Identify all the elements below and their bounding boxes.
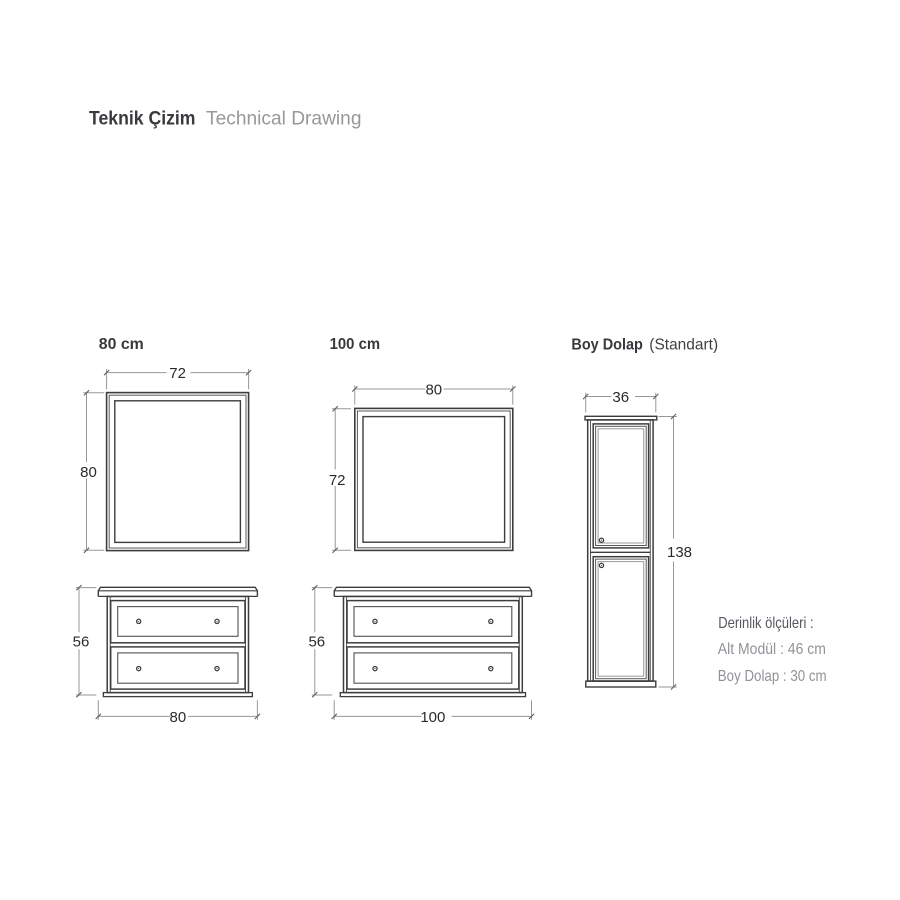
svg-text:80: 80: [170, 709, 187, 726]
svg-text:(Standart): (Standart): [649, 336, 718, 353]
svg-text:80 cm: 80 cm: [99, 336, 144, 353]
svg-text:Derinlik ölçüleri :: Derinlik ölçüleri :: [718, 615, 813, 632]
svg-text:72: 72: [329, 472, 346, 489]
svg-text:Technical Drawing: Technical Drawing: [206, 107, 362, 129]
svg-text:56: 56: [73, 634, 90, 651]
svg-text:80: 80: [425, 382, 442, 399]
svg-text:Teknik Çizim: Teknik Çizim: [89, 107, 196, 129]
svg-text:56: 56: [308, 634, 325, 651]
svg-text:72: 72: [169, 365, 186, 382]
svg-text:138: 138: [667, 544, 692, 561]
svg-text:Alt Modül : 46 cm: Alt Modül : 46 cm: [718, 641, 826, 658]
svg-text:100 cm: 100 cm: [330, 336, 381, 353]
svg-text:Boy Dolap : 30 cm: Boy Dolap : 30 cm: [718, 668, 827, 685]
svg-text:36: 36: [612, 389, 629, 406]
svg-text:Boy Dolap: Boy Dolap: [571, 336, 643, 353]
svg-text:80: 80: [80, 464, 97, 481]
svg-text:100: 100: [420, 709, 445, 726]
